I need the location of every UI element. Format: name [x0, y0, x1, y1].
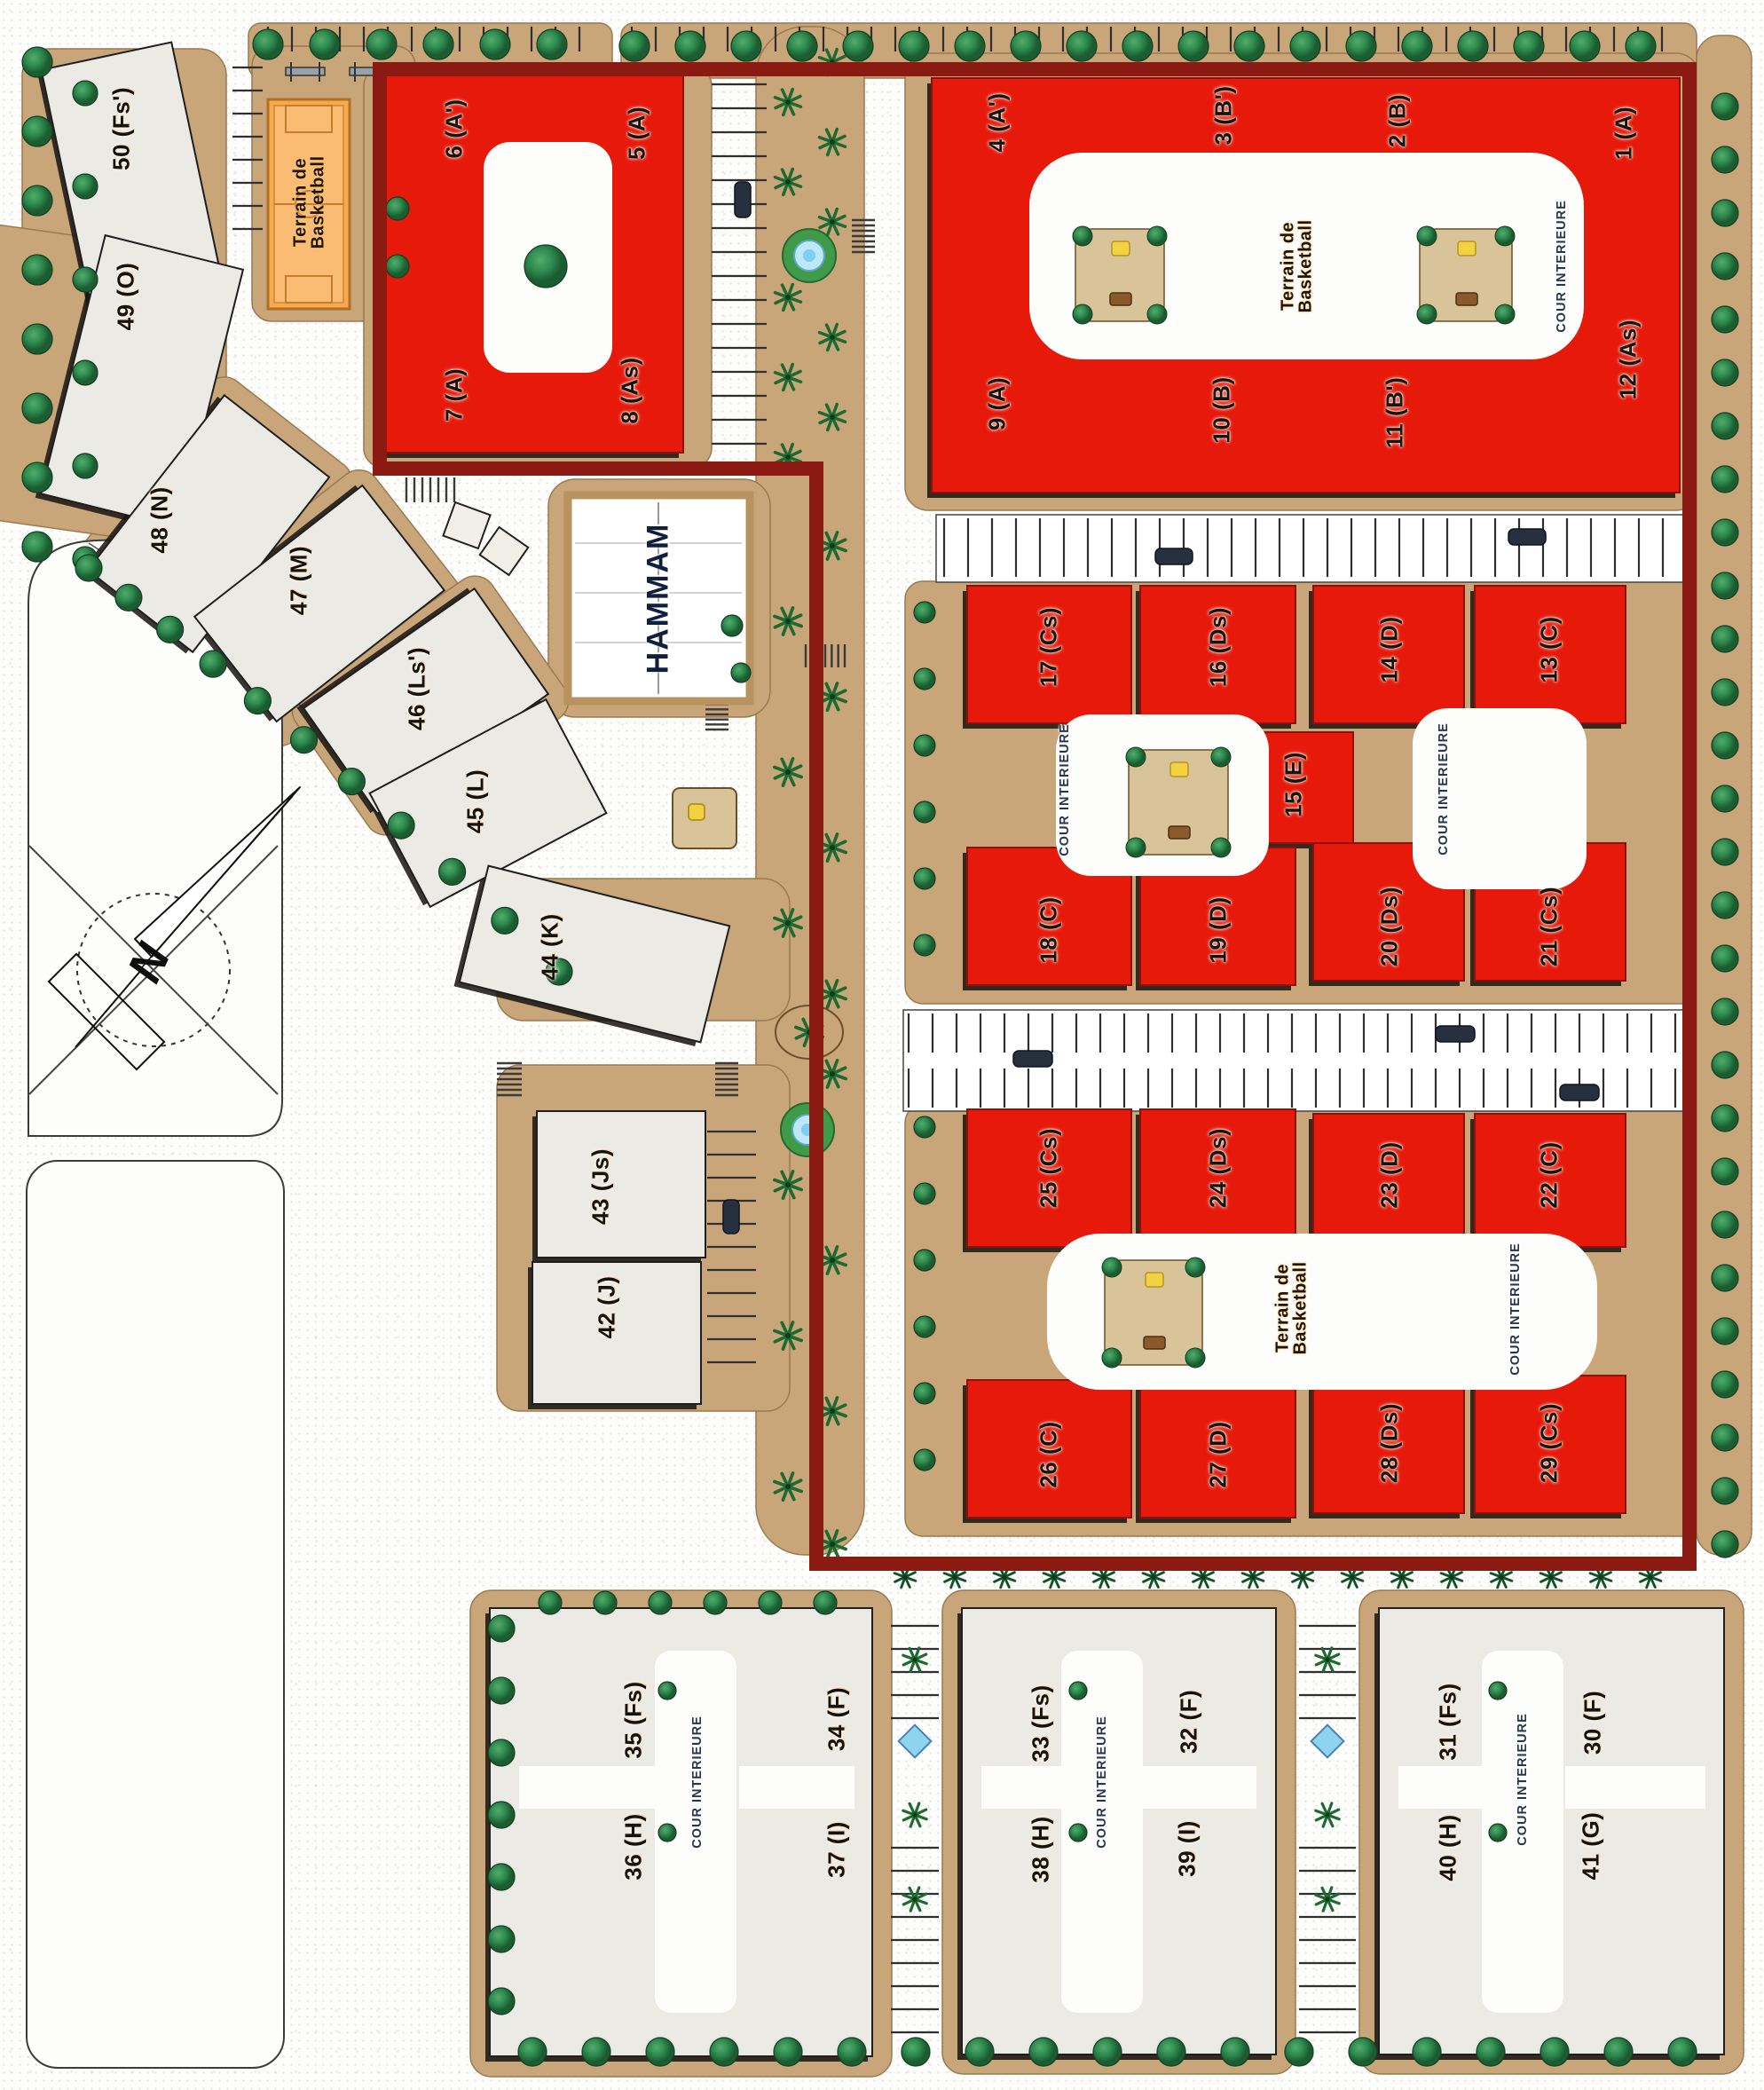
building-21-label: 21 (Cs): [1536, 887, 1563, 966]
building-40-label: 40 (H): [1435, 1814, 1462, 1881]
building-19-label: 19 (D): [1205, 896, 1232, 963]
building-49-label: 49 (O): [113, 263, 140, 331]
inner-courtyard-4-label: COUR INTERIEURE: [1508, 1242, 1523, 1376]
building-33-label: 33 (Fs): [1028, 1684, 1055, 1762]
building-46-label: 46 (Ls'): [404, 647, 431, 730]
building-9-label: 9 (A): [984, 377, 1012, 430]
building-5-label: 5 (A): [624, 106, 651, 160]
building-3-label: 3 (B'): [1210, 86, 1238, 146]
building-1-label: 1 (A): [1610, 106, 1638, 160]
building-8-label: 8 (As): [617, 357, 644, 423]
building-20-label: 20 (Ds): [1376, 887, 1404, 966]
building-2-label: 2 (B): [1384, 94, 1412, 147]
building-10-label: 10 (B): [1209, 376, 1236, 443]
building-42-label: 42 (J): [594, 1276, 621, 1339]
building-15-label: 15 (E): [1280, 752, 1308, 817]
building-38-label: 38 (H): [1028, 1816, 1055, 1882]
building-23-label: 23 (D): [1376, 1141, 1404, 1208]
building-30-label: 30 (F): [1579, 1691, 1607, 1755]
inner-courtyard-2-label: COUR INTERIEURE: [1058, 723, 1072, 856]
building-18-label: 18 (C): [1036, 896, 1063, 963]
inner-courtyard-1-label: COUR INTERIEURE: [1555, 200, 1569, 333]
building-35-label: 35 (Fs): [620, 1681, 648, 1758]
building-43-label: 43 (Js): [587, 1148, 615, 1225]
building-41-label: 41 (G): [1578, 1812, 1605, 1881]
building-47-label: 47 (M): [286, 546, 313, 615]
building-37-label: 37 (I): [823, 1821, 851, 1878]
building-13-label: 13 (C): [1536, 616, 1563, 682]
basketball-court-2-label: Terrain de Basketball: [1280, 219, 1316, 312]
label-layer: 1 (A)2 (B)3 (B')4 (A')5 (A)6 (A')7 (A)8 …: [0, 0, 1764, 2090]
building-7-label: 7 (A): [441, 368, 469, 422]
building-39-label: 39 (I): [1174, 1820, 1201, 1877]
site-plan: 1 (A)2 (B)3 (B')4 (A')5 (A)6 (A')7 (A)8 …: [0, 0, 1764, 2090]
compass-north-label: N: [117, 935, 182, 990]
building-29-label: 29 (Cs): [1536, 1403, 1563, 1483]
building-12-label: 12 (As): [1615, 319, 1642, 399]
inner-courtyard-3-label: COUR INTERIEURE: [1437, 722, 1451, 856]
basketball-court-3-label: Terrain de Basketball: [1274, 1261, 1311, 1354]
building-6-label: 6 (A'): [441, 99, 469, 159]
building-24-label: 24 (Ds): [1205, 1128, 1232, 1208]
building-45-label: 45 (L): [462, 769, 490, 833]
hammam-label: HAMMAM: [642, 523, 676, 674]
building-4-label: 4 (A'): [984, 93, 1012, 153]
building-34-label: 34 (F): [823, 1687, 851, 1751]
inner-courtyard-6-label: COUR INTERIEURE: [1095, 1715, 1109, 1849]
building-48-label: 48 (N): [146, 486, 174, 553]
basketball-court-1-label: Terrain de Basketball: [292, 155, 328, 248]
building-44-label: 44 (K): [537, 913, 564, 980]
building-11-label: 11 (B'): [1382, 377, 1409, 448]
inner-courtyard-5-label: COUR INTERIEURE: [690, 1715, 705, 1849]
building-28-label: 28 (Ds): [1376, 1403, 1404, 1483]
building-17-label: 17 (Cs): [1036, 607, 1063, 687]
building-50-label: 50 (Fs'): [108, 87, 136, 170]
building-36-label: 36 (H): [620, 1813, 648, 1880]
building-31-label: 31 (Fs): [1435, 1683, 1462, 1760]
building-14-label: 14 (D): [1376, 616, 1404, 682]
building-25-label: 25 (Cs): [1036, 1128, 1063, 1208]
inner-courtyard-7-label: COUR INTERIEURE: [1516, 1713, 1530, 1846]
building-26-label: 26 (C): [1036, 1421, 1063, 1487]
building-32-label: 32 (F): [1176, 1690, 1203, 1754]
building-27-label: 27 (D): [1205, 1421, 1232, 1487]
building-22-label: 22 (C): [1536, 1141, 1563, 1208]
building-16-label: 16 (Ds): [1205, 607, 1232, 687]
